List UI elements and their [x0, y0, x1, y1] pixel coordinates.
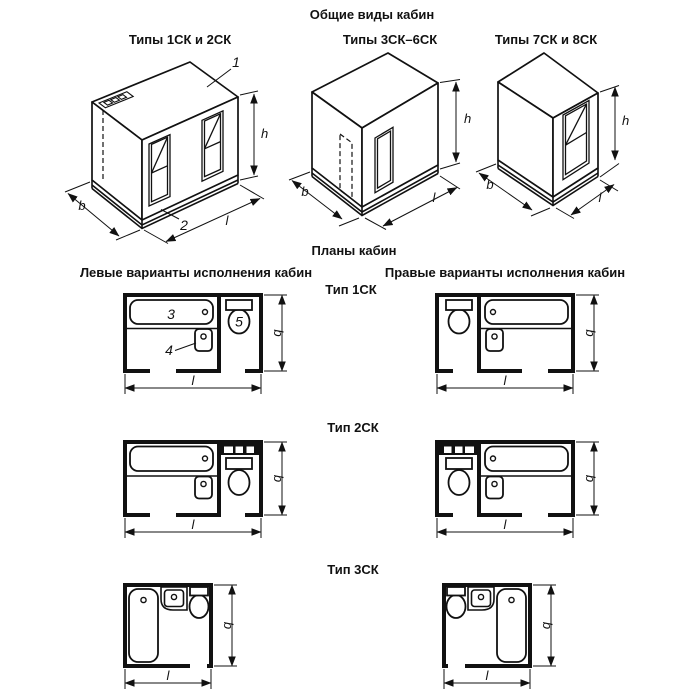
dim-width: b: [576, 295, 599, 371]
dim-label-b: b: [221, 622, 236, 629]
dim-label-b: b: [78, 198, 85, 213]
callout-toilet: 5: [235, 314, 243, 330]
view-label-7sk-8sk: Типы 7СК и 8СК: [495, 32, 597, 47]
callout-4-leader: [175, 343, 196, 351]
dim-label-l: l: [504, 517, 508, 532]
type-label-3sk: Тип 3СК: [327, 562, 378, 577]
dim-label-l: l: [226, 213, 230, 228]
left-variants-heading: Левые варианты исполнения кабин: [80, 265, 312, 280]
dim-length: l: [125, 373, 261, 394]
type-label-2sk: Тип 2СК: [327, 420, 378, 435]
dim-label-b: b: [271, 329, 286, 336]
dim-length: l: [444, 668, 530, 689]
plan-2sk-left: b l: [113, 430, 303, 547]
dim-width: b: [533, 585, 556, 666]
callout-base: 2: [179, 217, 188, 233]
dim-length: l: [437, 517, 573, 538]
dim-label-b: b: [540, 622, 555, 629]
callout-cabin-panel: 1: [232, 54, 240, 70]
dim-width: b: [264, 295, 287, 371]
view-label-3sk-6sk: Типы 3СК–6СК: [343, 32, 437, 47]
dim-label-h: h: [622, 113, 629, 128]
dim-label-b: b: [486, 177, 493, 192]
callout-bath: 3: [167, 306, 175, 322]
right-variants-heading: Правые варианты исполнения кабин: [385, 265, 625, 280]
dim-label-h: h: [261, 126, 268, 141]
dim-length: l: [437, 373, 573, 394]
figure-canvas: Общие виды кабин Типы 1СК и 2СК Типы 3СК…: [0, 0, 700, 700]
plan-3sk-right: b l: [432, 573, 567, 700]
isometric-view-7sk-8sk: h b l: [470, 50, 665, 240]
view-label-1sk-2sk: Типы 1СК и 2СК: [129, 32, 231, 47]
dim-width: b: [214, 585, 237, 666]
callout-washbasin: 4: [165, 342, 173, 358]
dim-length: l: [125, 517, 261, 538]
plan-2sk-right: b l: [425, 430, 615, 547]
dim-height: h: [600, 86, 629, 178]
dim-height: h: [440, 80, 471, 170]
dim-label-b: b: [583, 475, 598, 482]
isometric-view-3sk-6sk: h b l: [283, 50, 483, 240]
dim-height: h: [240, 91, 268, 180]
general-views-title: Общие виды кабин: [310, 7, 435, 22]
dim-label-b: b: [583, 329, 598, 336]
dim-label-l: l: [433, 190, 437, 205]
isometric-view-1sk-2sk: 1 2 h b l: [55, 52, 305, 257]
dim-label-l: l: [504, 373, 508, 388]
dim-label-l: l: [486, 668, 490, 683]
dim-label-b: b: [271, 475, 286, 482]
dim-label-b: b: [301, 184, 308, 199]
dim-label-l: l: [192, 517, 196, 532]
type-label-1sk: Тип 1СК: [325, 282, 376, 297]
plans-title: Планы кабин: [311, 243, 396, 258]
plan-3sk-left: b l: [113, 573, 248, 700]
dim-length: l: [125, 668, 211, 689]
plan-1sk-left: 3 4 5 b l: [113, 283, 303, 403]
dim-label-l: l: [599, 190, 603, 205]
dim-label-l: l: [192, 373, 196, 388]
dim-width: b: [576, 442, 599, 515]
dim-width: b: [264, 442, 287, 515]
plan-1sk-right: b l: [425, 283, 615, 403]
dim-label-l: l: [167, 668, 171, 683]
